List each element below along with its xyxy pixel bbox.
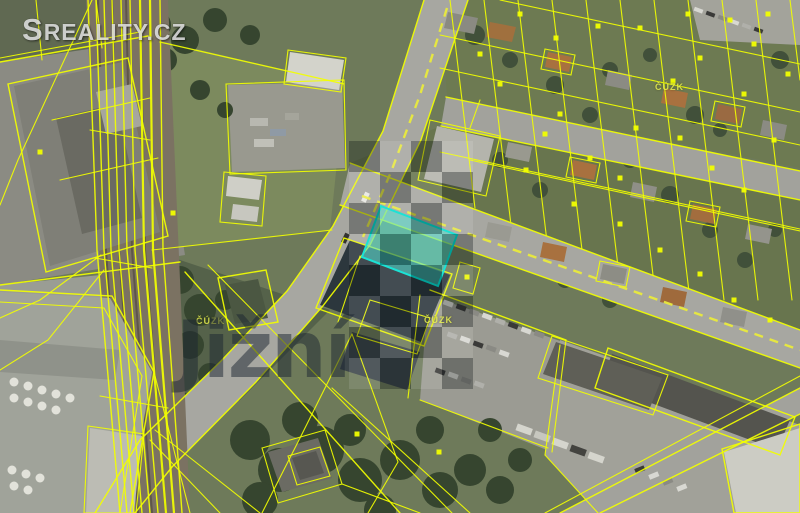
map-viewport[interactable]: ČÚZKČÚZKČÚZK Jižní SREALITY.CZ bbox=[0, 0, 800, 513]
aerial-cadastral-map bbox=[0, 0, 800, 513]
checker-watermark bbox=[349, 141, 473, 389]
sreality-logo: SREALITY.CZ bbox=[22, 12, 187, 48]
